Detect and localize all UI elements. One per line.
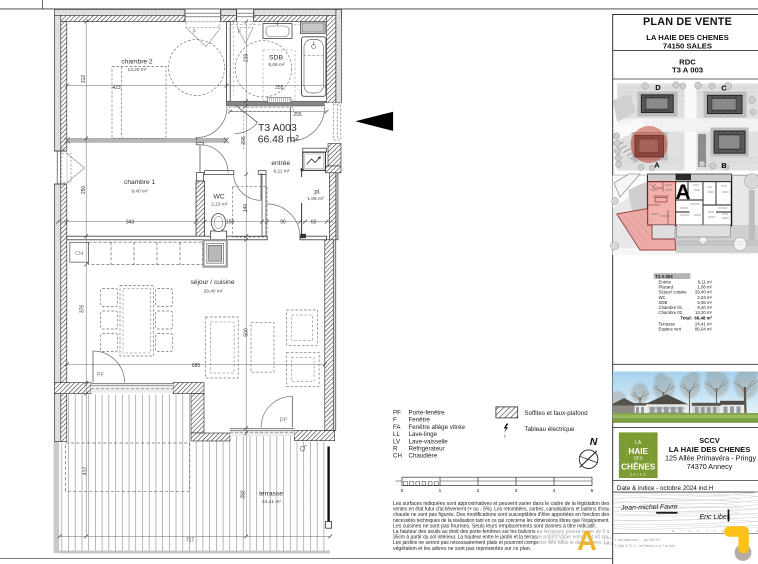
svg-text:255: 255 [293, 112, 302, 118]
svg-text:T3 A 003: T3 A 003 [672, 66, 703, 75]
svg-text:140: 140 [243, 204, 249, 213]
svg-text:250: 250 [81, 186, 87, 195]
svg-text:Date & indice - octobre 2024 i: Date & indice - octobre 2024 ind.H [617, 485, 714, 492]
svg-text:66.48 m²: 66.48 m² [258, 135, 300, 146]
svg-text:158: 158 [226, 219, 235, 225]
svg-text:WC: WC [213, 194, 224, 201]
svg-text:terrasse: terrasse [259, 491, 283, 498]
svg-text:206: 206 [241, 136, 247, 145]
svg-text:D: D [655, 83, 661, 92]
svg-text:SCCV: SCCV [699, 436, 720, 445]
svg-text:74150 SALES: 74150 SALES [663, 41, 712, 50]
svg-text:Lave-linge: Lave-linge [409, 431, 438, 438]
svg-text:13,20 m²: 13,20 m² [128, 67, 147, 73]
svg-text:T3 A003: T3 A003 [258, 123, 297, 134]
svg-text:a t e l i e r: a t e l i e r [548, 532, 567, 537]
svg-text:740 A: 740 A [603, 542, 613, 546]
svg-text:chambre 1: chambre 1 [124, 179, 155, 186]
svg-text:376: 376 [80, 305, 86, 314]
svg-text:Tableau électrique: Tableau électrique [524, 426, 575, 433]
svg-text:SDB: SDB [269, 55, 283, 62]
svg-text:66,48 m²: 66,48 m² [694, 316, 712, 321]
svg-text:0: 0 [401, 488, 404, 494]
svg-text:5: 5 [591, 488, 594, 494]
svg-text:2,23 m²: 2,23 m² [211, 202, 228, 208]
svg-text:Eric Libes: Eric Libes [700, 514, 731, 521]
svg-text:60: 60 [311, 219, 317, 225]
svg-text:R: R [393, 446, 398, 453]
svg-text:2: 2 [477, 488, 480, 494]
svg-text:LV: LV [393, 438, 401, 445]
svg-text:PF: PF [393, 410, 401, 417]
svg-text:chambre 2: chambre 2 [121, 59, 152, 66]
svg-text:Lave-vaisselle: Lave-vaisselle [409, 438, 449, 445]
svg-text:T3 A 003: T3 A 003 [655, 274, 673, 279]
svg-text:HAIE: HAIE [628, 447, 648, 456]
svg-text:C: C [721, 84, 727, 93]
svg-text:Chambre 02: Chambre 02 [659, 310, 683, 315]
svg-text:4: 4 [553, 488, 556, 494]
svg-text:F: F [61, 149, 65, 155]
svg-text:7 rue Max ach - - go NN: 7 rue Max ach - - go NN 07 [615, 538, 661, 542]
svg-text:1 rue: 1 rue [603, 536, 611, 540]
svg-text:CH: CH [75, 251, 83, 257]
svg-text:Porte-fenêtre: Porte-fenêtre [409, 410, 446, 417]
svg-text:86,04 m²: 86,04 m² [695, 326, 713, 331]
svg-text:CH: CH [393, 453, 402, 460]
svg-text:F: F [238, 30, 242, 36]
svg-text:717: 717 [186, 538, 195, 544]
svg-text:9,40 m²: 9,40 m² [131, 189, 148, 195]
svg-text:Soffites et faux-plafond: Soffites et faux-plafond [524, 410, 588, 417]
svg-text:T.(0)4 5 74 4 - les fleu: T.(0)4 5 74 4 - les fleurs e u 7 a.com [615, 544, 676, 548]
svg-text:A: A [675, 181, 690, 204]
svg-text:Fenêtre allège vitrée: Fenêtre allège vitrée [409, 424, 466, 431]
svg-text:5,06 m²: 5,06 m² [268, 62, 285, 68]
svg-text:Espace vert: Espace vert [659, 326, 682, 331]
svg-text:3: 3 [515, 488, 518, 494]
svg-text:13,20 m²: 13,20 m² [695, 310, 713, 315]
svg-text:292: 292 [241, 490, 247, 499]
svg-text:Total:: Total: [680, 316, 692, 321]
svg-text:N: N [590, 436, 598, 448]
svg-text:F: F [393, 417, 397, 424]
svg-text:24,41 m²: 24,41 m² [262, 499, 281, 505]
svg-text:A: A [577, 525, 597, 556]
svg-text:PF: PF [280, 417, 288, 424]
svg-text:B: B [721, 161, 727, 170]
svg-text:1,08 m²: 1,08 m² [307, 196, 324, 202]
svg-text:312: 312 [81, 75, 87, 84]
svg-text:F: F [193, 30, 197, 36]
svg-text:500: 500 [244, 328, 250, 337]
svg-text:1: 1 [439, 488, 442, 494]
svg-text:séjour / cuisine: séjour / cuisine [191, 279, 235, 286]
svg-text:423: 423 [112, 85, 121, 91]
svg-text:LL: LL [393, 431, 400, 438]
svg-text:685: 685 [192, 363, 201, 369]
svg-text:343: 343 [126, 219, 135, 225]
svg-text:DES: DES [634, 456, 643, 461]
svg-text:74370 Annecy: 74370 Annecy [687, 462, 733, 471]
svg-text:Réfrigérateur: Réfrigérateur [409, 446, 445, 453]
svg-text:219: 219 [244, 54, 250, 63]
svg-text:6,11 m²: 6,11 m² [273, 169, 289, 175]
svg-text:LA: LA [635, 440, 642, 446]
svg-text:Chaudière: Chaudière [409, 453, 438, 460]
svg-text:PF: PF [96, 372, 104, 379]
svg-text:FA: FA [393, 424, 401, 431]
svg-text:végétation et les arbres ne so: végétation et les arbres ne sont pas rep… [393, 546, 531, 552]
svg-text:A: A [654, 161, 660, 170]
svg-text:CHÊNES: CHÊNES [621, 461, 656, 472]
svg-text:entrée: entrée [271, 160, 290, 167]
svg-text:29,40 m²: 29,40 m² [204, 289, 223, 295]
svg-text:d a r c h i: d a r c h i [548, 538, 565, 543]
svg-text:pl.: pl. [314, 190, 321, 196]
svg-text:SALES: SALES [630, 473, 647, 477]
svg-text:412: 412 [83, 467, 89, 476]
svg-text:Fenêtre: Fenêtre [409, 417, 431, 424]
svg-text:PLAN DE VENTE: PLAN DE VENTE [643, 16, 732, 28]
svg-text:255,: 255, [275, 85, 285, 91]
svg-text:90: 90 [280, 219, 286, 225]
